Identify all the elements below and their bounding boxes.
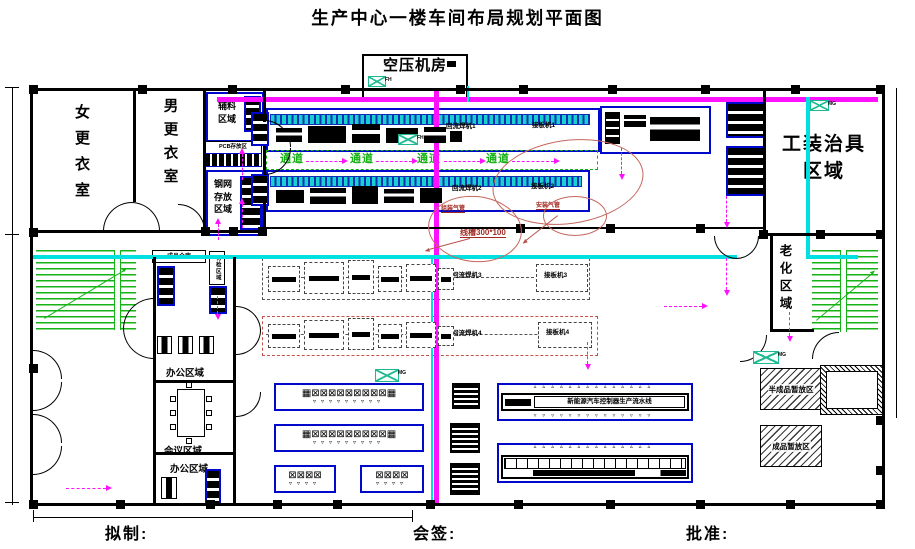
chair (206, 424, 212, 430)
dimension-line (412, 510, 413, 522)
door-arc (178, 204, 205, 231)
wall (30, 503, 885, 506)
planned-machine (406, 322, 436, 348)
staircase-left (36, 250, 136, 330)
machine-block (650, 117, 700, 141)
flow-arrow (242, 154, 243, 180)
machine-block (352, 186, 378, 204)
door-arc (123, 328, 154, 359)
column (876, 230, 885, 239)
stair-rail (114, 250, 121, 330)
door-arc (236, 330, 261, 355)
flow-arrow (726, 196, 727, 222)
aux-line1: 辅料 (210, 100, 244, 113)
machine-block (624, 115, 646, 127)
air-pipe-main-horizontal (217, 97, 878, 102)
dimension-line (12, 88, 13, 505)
dimension-line (33, 517, 413, 518)
planned-machine (406, 264, 436, 292)
column (606, 224, 615, 233)
area-semi-finished: 半成品暂放区 (760, 368, 822, 410)
flow-arrow (218, 224, 219, 240)
column (519, 85, 528, 94)
office-desk (161, 477, 177, 499)
chairs: ▿▿▿▿▿▿▿▿▿ (313, 399, 385, 405)
semi-finished-label: 半成品暂放区 (768, 384, 815, 395)
column (876, 466, 885, 475)
chairs-top: ▵▵▵▵▵▵▵▵▵▵▵▵▵▵ (499, 445, 691, 450)
wall (882, 88, 885, 506)
column (786, 500, 795, 509)
machine-block (450, 131, 462, 142)
column (273, 500, 282, 509)
chair (206, 396, 212, 402)
flow-arrow (306, 161, 342, 162)
flow-arrow (726, 258, 727, 290)
dimension-line (5, 502, 19, 503)
aisle-label: 通道 (350, 154, 374, 165)
planned-machine (268, 324, 300, 348)
chair (186, 438, 192, 444)
assembly-line: ▵▵▵▵▵▵▵▵▵▵▵▵▵▵ 新能源汽车控制器生产流水线 ▿▿▿▿▿▿▿▿▿▿▿… (497, 383, 693, 421)
workbench-row: ⊠⊠⊠⊠ ▿▿▿▿ (360, 465, 424, 493)
assembly-line: ▵▵▵▵▵▵▵▵▵▵▵▵▵▵ (497, 443, 693, 483)
line2-label-a: 回流焊机2 (452, 186, 482, 193)
footer-approve: 批准: (686, 520, 729, 544)
elevator-shaft (820, 365, 884, 415)
conveyor-cells (504, 458, 686, 469)
door-arc (33, 350, 62, 379)
column (116, 500, 125, 509)
column (258, 227, 267, 236)
air-pipe-main-vertical (434, 91, 439, 503)
column (696, 224, 705, 233)
assembly-line-label: 新能源汽车控制器生产流水线 (534, 396, 685, 408)
column (29, 85, 38, 94)
document-symbol-code: MG (398, 371, 406, 376)
room-label-aging: 老化区域 (778, 244, 791, 314)
wall (133, 88, 136, 202)
machine-block (505, 399, 531, 406)
footer-countersign: 会签: (413, 520, 456, 544)
flow-arrow (376, 161, 412, 162)
aux-line2: 区域 (210, 113, 244, 126)
column (816, 230, 825, 239)
wall (770, 329, 814, 332)
planned-machine (378, 324, 402, 348)
column (426, 500, 435, 509)
column (701, 85, 710, 94)
document-symbol-icon (753, 351, 779, 364)
machine-rack (605, 112, 620, 144)
tooling-rack (726, 102, 766, 138)
column (608, 85, 617, 94)
door-arc (812, 332, 839, 359)
line1-label-b: 接板机1 (532, 123, 555, 130)
room-label-men-locker: 男更衣室 (162, 98, 177, 192)
flow-arrow (242, 204, 243, 228)
finished-label: 成品暂放区 (771, 441, 811, 452)
planned-machine (304, 320, 344, 350)
document-symbol-icon (810, 100, 829, 111)
air-compressor-tick (447, 61, 456, 67)
chairs: ▿▿▿▿ (376, 481, 408, 487)
wall (153, 380, 236, 383)
storage-rack (209, 286, 227, 314)
machine-block (504, 470, 686, 476)
room-label-office1: 办公区域 (166, 367, 204, 380)
assembly-line-body: 新能源汽车控制器生产流水线 (501, 393, 689, 411)
door-arc (236, 306, 261, 331)
document-symbol-code: MG (778, 353, 786, 358)
column (206, 500, 215, 509)
column (333, 500, 342, 509)
assembly-line-body (501, 455, 689, 479)
machine-block (276, 128, 302, 142)
document-symbol-icon (398, 134, 418, 145)
flow-arrow (444, 161, 480, 162)
room-label-aux: 辅料 区域 (210, 100, 244, 125)
line3-label-a: 回流焊机3 (452, 273, 482, 280)
office-desk (157, 336, 172, 354)
column (456, 85, 465, 94)
room-label-office2: 办公区域 (170, 463, 208, 476)
cable-tray-horizontal (33, 255, 737, 259)
machine-block (352, 124, 380, 143)
standalone-machine (450, 463, 480, 495)
chair (170, 424, 176, 430)
storage-rack (157, 266, 175, 306)
column (229, 227, 238, 236)
flow-arrow (66, 488, 106, 489)
room-label-women-locker: 女更衣室 (74, 104, 89, 208)
dimension-line (33, 510, 34, 522)
steel-line2: 存放 (210, 191, 236, 204)
wall (763, 88, 766, 236)
machine-block (424, 127, 446, 143)
wall (153, 452, 236, 455)
door-arc (33, 382, 62, 411)
flow-arrow (789, 312, 790, 336)
column (696, 500, 705, 509)
standalone-machine (452, 383, 480, 409)
standalone-machine (450, 423, 480, 453)
machine-block (310, 188, 346, 204)
column (341, 85, 350, 94)
column (876, 85, 885, 94)
machine-block (308, 126, 346, 143)
area-finished: 成品暂放区 (760, 425, 822, 467)
workbench-row: ▦⊠⊠⊠⊠⊠⊠⊠⊠⊠▦ ▿▿▿▿▿▿▿▿▿ (274, 424, 424, 452)
machine-block (384, 189, 414, 203)
document-symbol-code: MG (828, 102, 836, 107)
wall (30, 88, 33, 506)
column (759, 230, 768, 239)
chairs-bottom: ▿▿▿▿▿▿▿▿▿▿▿▿▿▿ (499, 414, 691, 419)
planned-machine (438, 268, 454, 290)
document-symbol-icon (368, 76, 386, 87)
door-arc (236, 392, 261, 417)
steel-line1: 钢网 (210, 178, 236, 191)
wall (203, 88, 206, 234)
door-arc (33, 414, 62, 443)
steel-line3: 区域 (210, 203, 236, 216)
column (606, 500, 615, 509)
chairs: ▿▿▿▿▿▿▿▿▿ (313, 440, 385, 446)
column (791, 85, 800, 94)
revision-cloud (543, 196, 607, 236)
cable-tray-horizontal (806, 255, 858, 259)
line3-label-b: 接板机3 (544, 273, 567, 280)
dimension-line (5, 234, 19, 235)
column (876, 416, 885, 425)
machine-block (420, 188, 442, 203)
flow-arrow (664, 306, 702, 307)
line-end-cap (251, 174, 269, 206)
document-symbol-icon (375, 369, 399, 382)
planned-machine (378, 266, 402, 292)
line1-label-a: 回流焊机1 (446, 124, 476, 131)
column (29, 228, 38, 237)
chairs: ▿▿▿▿ (289, 481, 321, 487)
planned-machine (348, 260, 374, 294)
office-desk (178, 336, 193, 354)
pcb-rack (204, 153, 262, 167)
wall (770, 236, 773, 332)
door-arc (33, 446, 62, 475)
dimension-line (5, 87, 19, 88)
air-compressor-label: 空压机房 (383, 59, 447, 74)
tooling-line2: 区域 (766, 159, 882, 186)
room-label-steel: 钢网 存放 区域 (210, 178, 236, 216)
line4-label-a: 回流焊机4 (452, 331, 482, 338)
chair (170, 410, 176, 416)
stair-rail (840, 250, 847, 332)
planned-machine (304, 262, 344, 294)
flow-arrow (217, 296, 218, 314)
chairs-top: ▵▵▵▵▵▵▵▵▵▵▵▵▵▵ (499, 385, 691, 390)
workbench-row: ▦⊠⊠⊠⊠⊠⊠⊠⊠⊠▦ ▿▿▿▿▿▿▿▿▿ (274, 383, 424, 411)
door-arc (131, 202, 160, 231)
page-title: 生产中心一楼车间布局规划平面图 (0, 5, 915, 30)
door-arc (103, 202, 132, 231)
flow-arrow (587, 342, 588, 364)
document-symbol-code: FH (385, 78, 392, 83)
dimension-line (896, 88, 897, 418)
column (514, 500, 523, 509)
column (138, 85, 147, 94)
chair (170, 396, 176, 402)
chair (186, 382, 192, 388)
machine-block (276, 190, 304, 203)
wall (263, 88, 266, 122)
column (29, 500, 38, 509)
door-arc (736, 236, 759, 259)
planned-machine (268, 266, 300, 292)
planned-machine (348, 318, 374, 350)
cable-tray-thin-vertical (431, 259, 433, 503)
room-label-tooling: 工装治具 区域 (766, 132, 882, 185)
tooling-line1: 工装治具 (766, 132, 882, 159)
column (876, 500, 885, 509)
office-desk (199, 336, 214, 354)
document-symbol-code: FH (417, 136, 424, 141)
footer-draft: 拟制: (105, 520, 148, 544)
line4-label-b: 接板机4 (546, 330, 569, 337)
chair (206, 410, 212, 416)
column (228, 85, 237, 94)
tooling-rack (726, 146, 766, 196)
conference-table (177, 389, 205, 437)
workbench-row: ⊠⊠⊠⊠ ▿▿▿▿ (274, 465, 336, 493)
floor-plan: 生产中心一楼车间布局规划平面图 空压机房 女更衣室 男更衣室 工装治具 区域 老… (0, 0, 915, 549)
elevator-car (826, 371, 878, 409)
wall (263, 200, 266, 230)
planned-machine (438, 326, 454, 346)
